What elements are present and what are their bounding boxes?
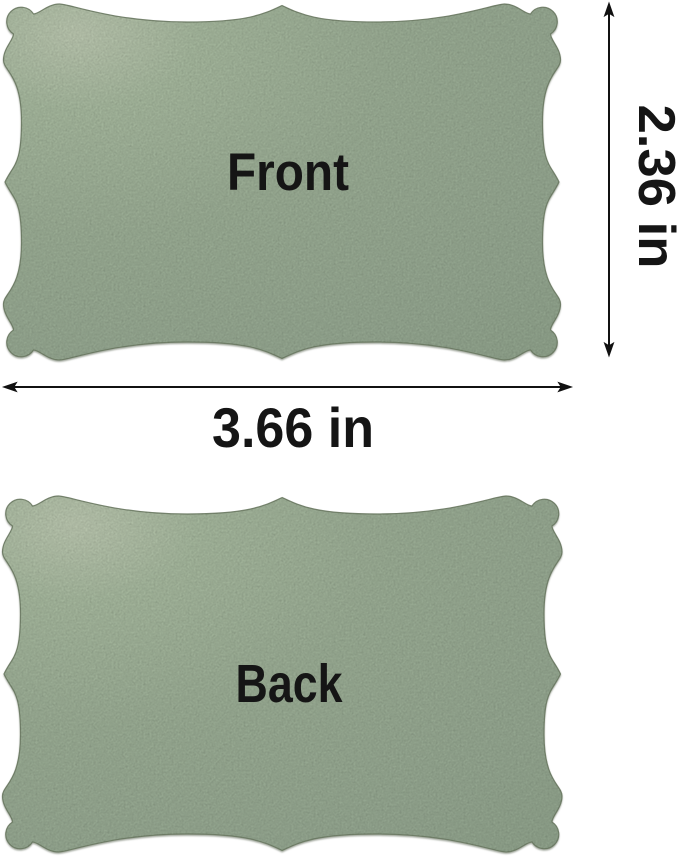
svg-text:Front: Front bbox=[227, 143, 349, 202]
svg-text:Back: Back bbox=[236, 655, 343, 714]
svg-text:3.66 in: 3.66 in bbox=[212, 396, 374, 459]
svg-text:2.36 in: 2.36 in bbox=[628, 105, 679, 269]
